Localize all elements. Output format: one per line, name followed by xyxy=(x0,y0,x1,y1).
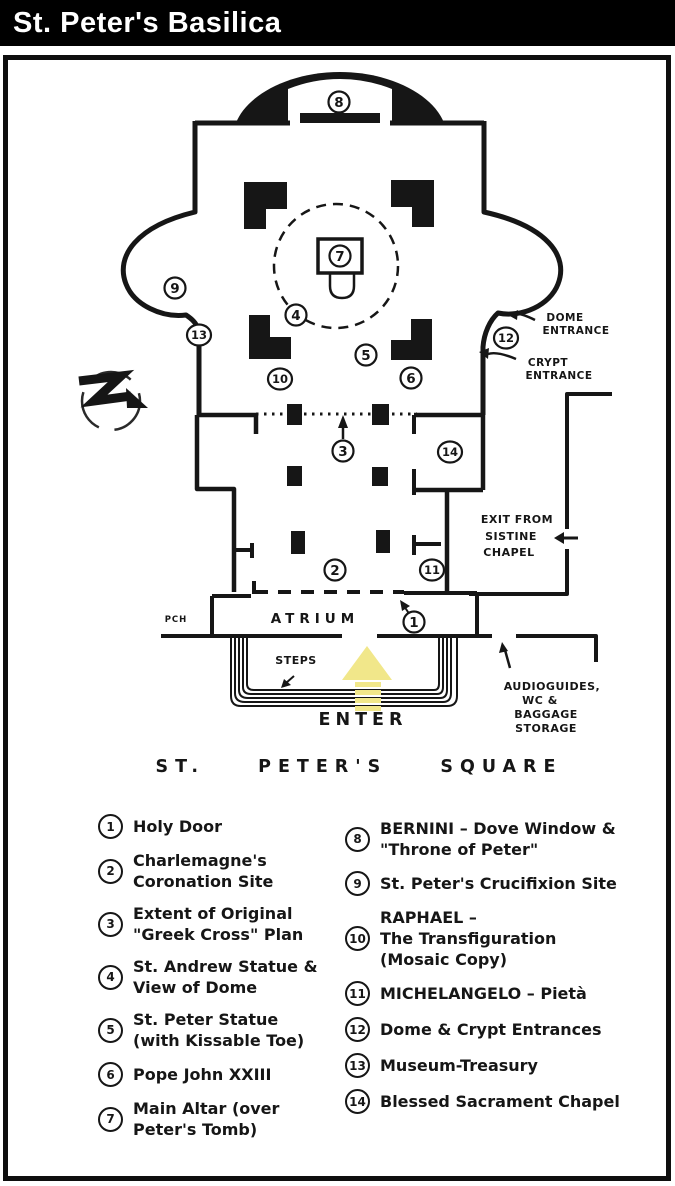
legend-label: Holy Door xyxy=(133,816,222,837)
map-marker-8: 8 xyxy=(329,92,350,113)
svg-text:AUDIOGUIDES,: AUDIOGUIDES, xyxy=(504,680,600,693)
legend-number: 8 xyxy=(345,827,370,852)
legend-label: St. Peter Statue (with Kissable Toe) xyxy=(133,1009,304,1051)
legend-label: Main Altar (over Peter's Tomb) xyxy=(133,1098,279,1140)
legend-item-11: 11 MICHELANGELO – Pietà xyxy=(345,981,650,1006)
svg-text:14: 14 xyxy=(442,445,458,459)
legend-item-4: 4 St. Andrew Statue & View of Dome xyxy=(98,956,343,998)
legend-number: 14 xyxy=(345,1089,370,1114)
legend-item-9: 9 St. Peter's Crucifixion Site xyxy=(345,871,650,896)
legend-column-right: 8 BERNINI – Dove Window & "Throne of Pet… xyxy=(345,818,650,1125)
svg-text:8: 8 xyxy=(334,95,343,111)
legend-label: MICHELANGELO – Pietà xyxy=(380,983,587,1004)
legend-number: 11 xyxy=(345,981,370,1006)
legend-number: 9 xyxy=(345,871,370,896)
map-marker-4: 4 xyxy=(286,305,307,326)
legend-number: 13 xyxy=(345,1053,370,1078)
legend-number: 5 xyxy=(98,1018,123,1043)
map-marker-5: 5 xyxy=(356,345,377,366)
legend-number: 3 xyxy=(98,912,123,937)
greek-cross-extent-line xyxy=(256,414,417,439)
legend-item-5: 5 St. Peter Statue (with Kissable Toe) xyxy=(98,1009,343,1051)
porch-label: PCH xyxy=(165,615,188,625)
svg-text:5: 5 xyxy=(361,348,370,364)
map-marker-12: 12 xyxy=(494,328,518,349)
exit-corridor-walls xyxy=(469,394,612,662)
map-marker-14: 14 xyxy=(438,442,462,463)
legend-label: Pope John XXIII xyxy=(133,1064,271,1085)
svg-text:CRYPT: CRYPT xyxy=(528,357,569,369)
map-marker-2: 2 xyxy=(325,560,346,581)
legend-item-8: 8 BERNINI – Dove Window & "Throne of Pet… xyxy=(345,818,650,860)
steps-arrow xyxy=(281,676,294,688)
audioguides-label: AUDIOGUIDES, WC & BAGGAGE STORAGE xyxy=(504,680,600,735)
legend-number: 4 xyxy=(98,965,123,990)
legend-label: Charlemagne's Coronation Site xyxy=(133,850,273,892)
legend-number: 12 xyxy=(345,1017,370,1042)
crypt-entrance-label: CRYPT ENTRANCE xyxy=(526,357,593,382)
legend-item-7: 7 Main Altar (over Peter's Tomb) xyxy=(98,1098,343,1140)
svg-text:13: 13 xyxy=(191,328,207,342)
svg-text:2: 2 xyxy=(330,563,339,579)
svg-text:11: 11 xyxy=(424,563,440,577)
legend-label: BERNINI – Dove Window & "Throne of Peter… xyxy=(380,818,616,860)
legend-item-2: 2 Charlemagne's Coronation Site xyxy=(98,850,343,892)
map-marker-3: 3 xyxy=(333,441,354,462)
steps-shape xyxy=(231,638,457,706)
floorplan-map: ATRIUM PCH STEPS ENTER ST. PETER'S SQUAR… xyxy=(8,60,665,806)
legend-number: 1 xyxy=(98,814,123,839)
nave-pillars xyxy=(287,404,390,554)
svg-text:ENTRANCE: ENTRANCE xyxy=(526,370,593,382)
legend-item-10: 10 RAPHAEL – The Transfiguration (Mosaic… xyxy=(345,907,650,970)
square-label: ST. PETER'S SQUARE xyxy=(156,757,563,777)
enter-label: ENTER xyxy=(319,710,408,730)
svg-text:7: 7 xyxy=(335,249,344,265)
atrium-label: ATRIUM xyxy=(271,611,359,627)
legend-number: 2 xyxy=(98,859,123,884)
map-marker-7: 7 xyxy=(330,246,351,267)
legend-label: Extent of Original "Greek Cross" Plan xyxy=(133,903,303,945)
svg-text:SISTINE: SISTINE xyxy=(485,530,537,543)
page-title: St. Peter's Basilica xyxy=(0,7,281,40)
map-marker-9: 9 xyxy=(165,278,186,299)
map-marker-6: 6 xyxy=(401,368,422,389)
legend-label: Museum-Treasury xyxy=(380,1055,538,1076)
svg-text:1: 1 xyxy=(409,615,418,631)
legend-label: Blessed Sacrament Chapel xyxy=(380,1091,620,1112)
map-marker-13: 13 xyxy=(187,325,211,346)
legend-item-12: 12 Dome & Crypt Entrances xyxy=(345,1017,650,1042)
legend-number: 7 xyxy=(98,1107,123,1132)
legend-item-3: 3 Extent of Original "Greek Cross" Plan xyxy=(98,903,343,945)
legend-label: St. Andrew Statue & View of Dome xyxy=(133,956,318,998)
steps-label: STEPS xyxy=(275,654,316,667)
legend-item-14: 14 Blessed Sacrament Chapel xyxy=(345,1089,650,1114)
north-compass-icon xyxy=(79,372,148,430)
svg-text:EXIT FROM: EXIT FROM xyxy=(481,513,553,526)
title-bar: St. Peter's Basilica xyxy=(0,0,675,46)
svg-text:12: 12 xyxy=(498,331,514,345)
legend-number: 10 xyxy=(345,926,370,951)
svg-text:BAGGAGE: BAGGAGE xyxy=(514,708,578,721)
svg-text:6: 6 xyxy=(406,371,415,387)
svg-text:3: 3 xyxy=(338,444,347,460)
sistine-exit-arrow xyxy=(554,532,578,544)
legend-item-6: 6 Pope John XXIII xyxy=(98,1062,343,1087)
audioguides-arrow xyxy=(499,642,510,668)
svg-text:WC &: WC & xyxy=(522,694,558,707)
svg-text:4: 4 xyxy=(291,308,300,324)
guidebook-page: St. Peter's Basilica xyxy=(0,0,675,1186)
legend-number: 6 xyxy=(98,1062,123,1087)
svg-text:ENTRANCE: ENTRANCE xyxy=(543,325,610,337)
legend-item-1: 1 Holy Door xyxy=(98,814,343,839)
svg-text:9: 9 xyxy=(170,281,179,297)
map-marker-1: 1 xyxy=(404,612,425,633)
map-marker-11: 11 xyxy=(420,560,444,581)
sistine-exit-label: EXIT FROM SISTINE CHAPEL xyxy=(481,513,553,559)
svg-text:STORAGE: STORAGE xyxy=(515,722,577,735)
legend-column-left: 1 Holy Door 2 Charlemagne's Coronation S… xyxy=(98,814,343,1151)
legend-label: RAPHAEL – The Transfiguration (Mosaic Co… xyxy=(380,907,556,970)
legend-item-13: 13 Museum-Treasury xyxy=(345,1053,650,1078)
dome-entrance-label: DOME ENTRANCE xyxy=(543,312,610,337)
svg-text:10: 10 xyxy=(272,372,288,386)
svg-text:DOME: DOME xyxy=(546,312,583,324)
legend-label: St. Peter's Crucifixion Site xyxy=(380,873,617,894)
map-marker-10: 10 xyxy=(268,369,292,390)
svg-text:CHAPEL: CHAPEL xyxy=(483,546,534,559)
legend-label: Dome & Crypt Entrances xyxy=(380,1019,602,1040)
